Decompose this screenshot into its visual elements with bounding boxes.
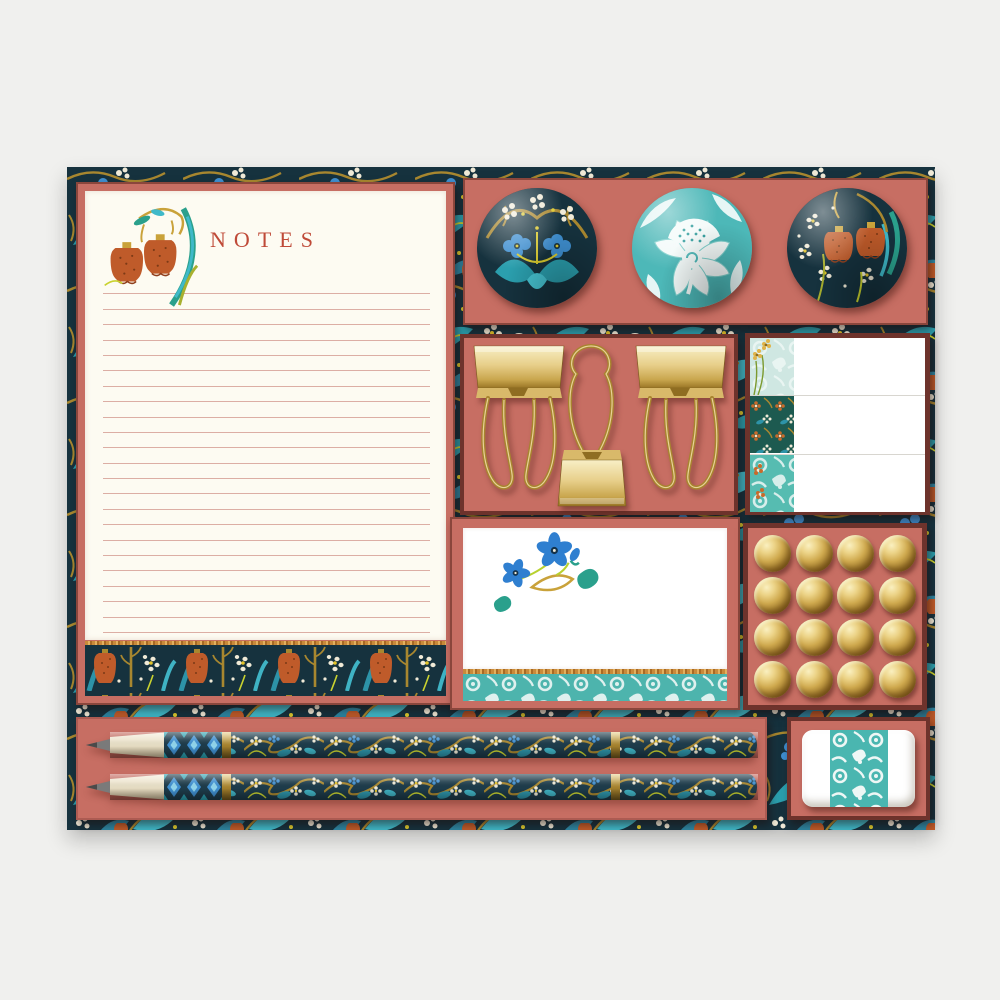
magnet-white-peony [632,188,752,308]
ruled-line [103,602,430,617]
binder-clip-center [558,346,626,506]
magnet-gloss [787,188,907,308]
push-pin [837,619,874,656]
blue-flower-sprig-illustration [463,528,613,620]
pencil-illustration [84,732,759,758]
push-pin [837,661,874,698]
ruled-line [103,571,430,586]
push-pin [879,661,916,698]
push-pin [754,619,791,656]
ruled-line [103,325,430,340]
ruled-line [103,618,430,633]
binder-clips-illustration [464,338,734,511]
notepad-floral-band [85,645,446,696]
notepad-lines [103,279,430,664]
notepad-panel: NOTES [76,182,455,705]
floral-mat-background: NOTES [67,167,935,830]
binder-clips-panel [460,334,738,515]
push-pin [837,535,874,572]
push-pin [796,661,833,698]
pencil-illustration [84,774,759,800]
push-pin [754,661,791,698]
sticky-note [750,396,925,454]
ruled-line [103,448,430,463]
ruled-line [103,510,430,525]
note-card-panel [450,517,740,710]
eraser [802,730,915,807]
note-card-paper [463,528,727,669]
magnet-navy-floral [477,188,597,308]
push-pin [879,535,916,572]
pencils-panel [76,717,767,820]
magnet-gloss [477,188,597,308]
ruled-line [103,494,430,509]
stationery-set-photo: NOTES [0,0,1000,1000]
ruled-line [103,556,430,571]
push-pin [796,577,833,614]
ruled-line [103,541,430,556]
ruled-line [103,587,430,602]
push-pin [837,577,874,614]
note-card-damask-band [463,674,727,701]
ruled-line [103,479,430,494]
ruled-line [103,371,430,386]
sticky-note-pattern-strip [750,455,794,512]
ruled-line [103,464,430,479]
ruled-line [103,387,430,402]
pencil [84,732,759,758]
binder-clip-left [474,346,564,488]
ruled-line [103,433,430,448]
sticky-notes-panel [745,333,930,515]
push-pin [796,619,833,656]
push-pin [796,535,833,572]
magnet-gloss [632,188,752,308]
push-pin-grid [748,528,922,705]
ruled-line [103,402,430,417]
sticky-note-pattern-strip [750,396,794,453]
fritillary-sprig-illustration [85,191,203,309]
push-pins-panel [743,523,927,710]
sticky-note [750,455,925,512]
eraser-panel [787,717,930,820]
push-pin [879,577,916,614]
sticky-note [750,338,925,396]
pencil [84,774,759,800]
ruled-line [103,418,430,433]
ruled-line [103,356,430,371]
notepad-paper: NOTES [85,191,446,640]
ruled-line [103,525,430,540]
push-pin [754,535,791,572]
ruled-line [103,310,430,325]
magnet-orange-fritillary [787,188,907,308]
sticky-note-pattern-strip [750,338,794,395]
push-pin [754,577,791,614]
ruled-line [103,341,430,356]
binder-clip-right [636,346,726,488]
push-pin [879,619,916,656]
eraser-damask-band [830,730,888,807]
magnets-panel [463,178,928,325]
